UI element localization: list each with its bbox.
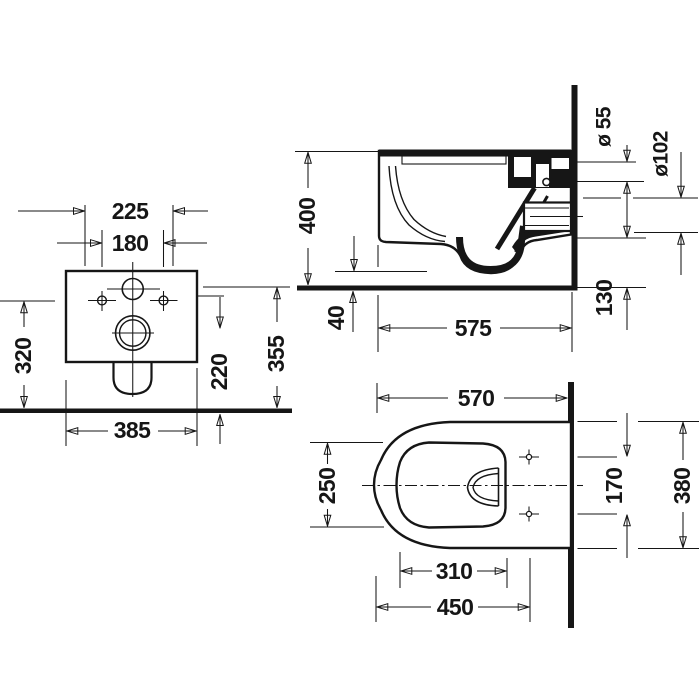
- dim-dia55: ø 55: [593, 106, 628, 237]
- dim-dia102: ø102: [650, 131, 682, 275]
- dim-180: 180: [57, 230, 207, 256]
- dim-385: 385: [66, 368, 197, 446]
- dim-label-385: 385: [114, 417, 151, 443]
- supply-connection: [543, 178, 550, 185]
- dim-320: 320: [0, 301, 55, 408]
- dim-label-225: 225: [112, 198, 149, 224]
- floor-line: [0, 409, 292, 414]
- plan-view: 570 250 310 450: [310, 382, 699, 628]
- dim-label-450: 450: [437, 594, 474, 620]
- rim-channel: [402, 156, 506, 164]
- dim-310: 310: [400, 552, 507, 588]
- dim-label-380: 380: [669, 468, 695, 505]
- dim-label-170: 170: [601, 468, 627, 505]
- dim-380: 380: [669, 422, 695, 547]
- dim-225: 225: [18, 198, 208, 224]
- dim-label-dia102: ø102: [650, 131, 673, 176]
- technical-drawing-sheet: 225 180 320 355 220: [0, 0, 700, 700]
- dim-label-400: 400: [294, 198, 320, 235]
- fixing-hole: [526, 454, 531, 459]
- dim-label-130: 130: [591, 280, 617, 317]
- dim-170: 170: [601, 413, 627, 558]
- dim-label-320: 320: [10, 338, 36, 375]
- dim-label-575: 575: [455, 315, 492, 341]
- flush-pipe-cutout: [552, 158, 570, 169]
- dim-label-355: 355: [263, 335, 289, 372]
- dim-570: 570: [377, 383, 567, 413]
- dim-label-40: 40: [323, 306, 349, 330]
- dim-label-dia55: ø 55: [593, 106, 616, 147]
- fixing-hole: [526, 511, 531, 516]
- floor-line: [297, 286, 578, 291]
- toilet-dimension-drawing: 225 180 320 355 220: [0, 0, 700, 700]
- dim-220: 220: [197, 296, 232, 444]
- dim-label-310: 310: [436, 558, 473, 584]
- wall-side-annotations: ø 55 ø102 130: [578, 106, 699, 330]
- dim-label-250: 250: [314, 468, 340, 505]
- rear-view: 225 180 320 355 220: [0, 198, 292, 446]
- flush-pipe-cutout: [514, 157, 531, 177]
- plan-right-annotations: 170 380: [578, 413, 700, 558]
- side-view: 400 40 575 ø 55: [294, 85, 698, 352]
- dim-label-570: 570: [458, 385, 495, 411]
- dim-label-180: 180: [112, 230, 149, 256]
- wall-line: [572, 85, 578, 291]
- dim-400: 400: [294, 152, 379, 285]
- dim-label-220: 220: [206, 354, 232, 391]
- dim-40: 40: [323, 236, 427, 332]
